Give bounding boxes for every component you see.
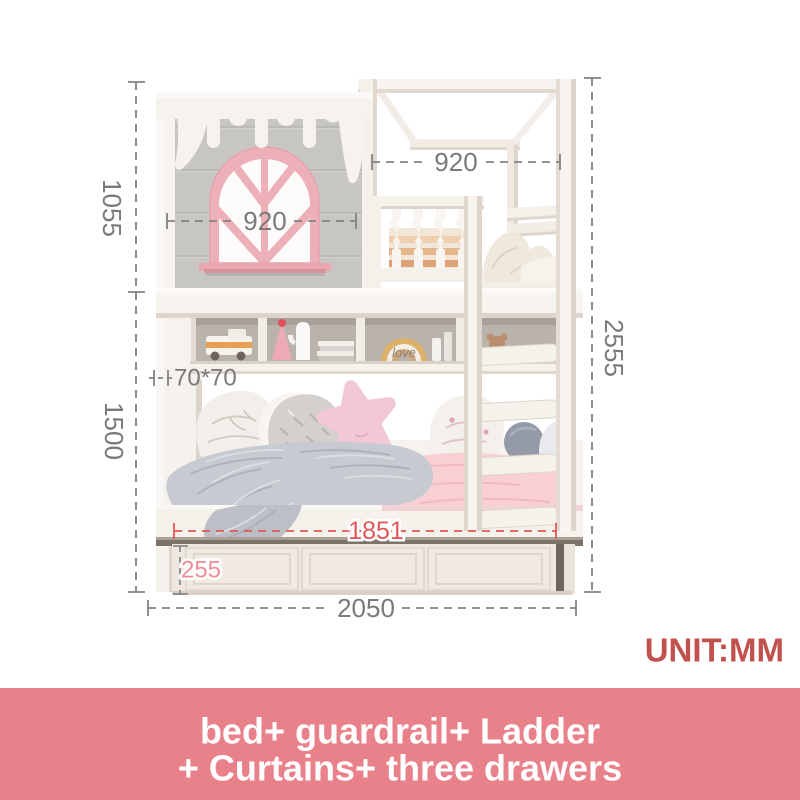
svg-text:920: 920 <box>243 206 286 236</box>
svg-text:+ Curtains+ three drawers: + Curtains+ three drawers <box>178 748 622 789</box>
svg-text:1500: 1500 <box>99 402 129 460</box>
svg-text:love: love <box>392 345 416 360</box>
svg-text:70*70: 70*70 <box>174 365 237 392</box>
svg-text:920: 920 <box>434 147 477 177</box>
svg-text:2555: 2555 <box>599 319 629 377</box>
svg-text:1055: 1055 <box>97 179 127 237</box>
svg-text:2050: 2050 <box>337 593 395 623</box>
svg-text:UNIT:MM: UNIT:MM <box>645 632 784 669</box>
svg-text:1851: 1851 <box>348 517 404 545</box>
svg-text:bed+ guardrail+ Ladder: bed+ guardrail+ Ladder <box>200 711 600 752</box>
svg-text:255: 255 <box>181 557 221 584</box>
